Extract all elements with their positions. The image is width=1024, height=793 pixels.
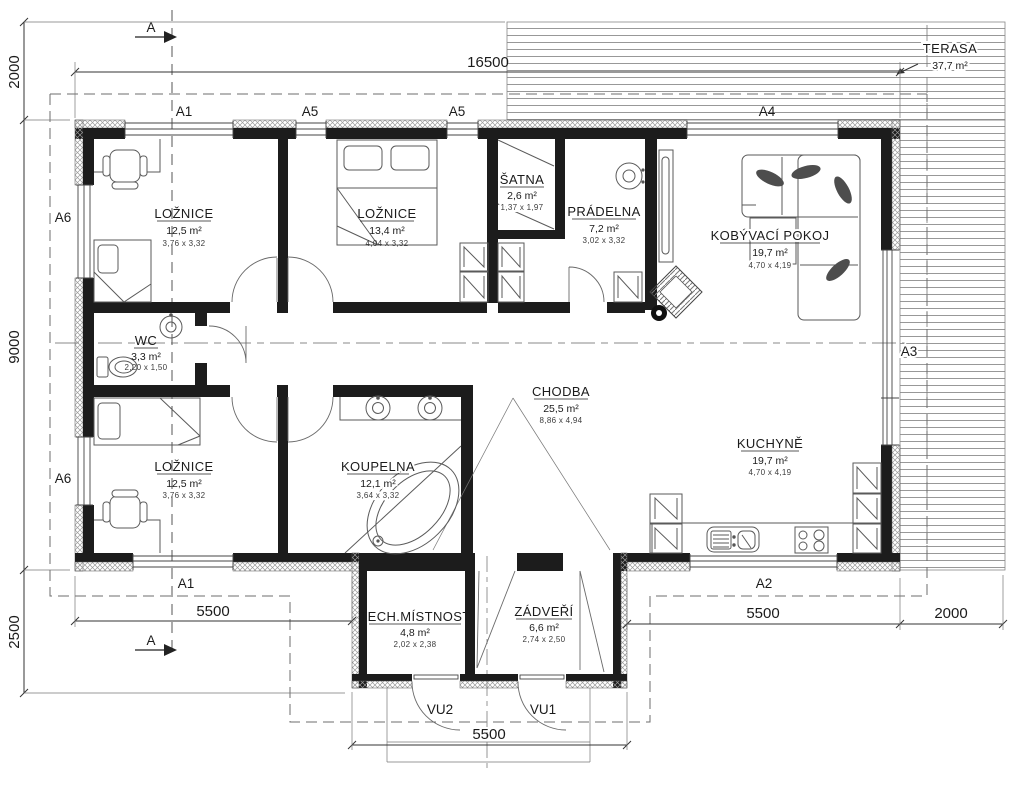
room-name: KOBÝVACÍ POKOJ (711, 228, 830, 243)
marker-a6-top: A6 (55, 210, 72, 225)
terrace: TERASA 37,7 m² (507, 22, 1005, 570)
dimension-bottom-right: 5500 2000 (623, 575, 1007, 630)
section-marker-top: A (135, 20, 177, 43)
room-dims: 8,86 x 4,94 (540, 416, 583, 425)
room-name: LOŽNICE (154, 459, 213, 474)
room-label-kitchen: KUCHYNĚ 19,7 m² 4,70 x 4,19 (737, 436, 803, 477)
floor-plan-drawing: TERASA 37,7 m² (0, 0, 1024, 793)
room-name: PRÁDELNA (567, 204, 640, 219)
doors (209, 257, 604, 730)
marker-vu1: VU1 (530, 702, 556, 717)
room-area: 19,7 m² (752, 455, 788, 467)
terrace-deck-top (507, 22, 1005, 120)
wc-sink-icon (160, 313, 182, 338)
room-area: 12,1 m² (360, 478, 396, 490)
utility-shaft-icon (498, 243, 524, 302)
bed-single-icon (94, 398, 200, 445)
room-name: LOŽNICE (357, 206, 416, 221)
room-area: 3,3 m² (131, 351, 161, 363)
room-label-tech-room: TECH.MÍSTNOST 4,8 m² 2,02 x 2,38 (359, 609, 470, 649)
room-label-laundry: PRÁDELNA 7,2 m² 3,02 x 3,32 (567, 204, 640, 245)
room-dims: 2,74 x 2,50 (523, 635, 566, 644)
door-bedroom1 (232, 257, 277, 302)
window-a6-bottom (76, 437, 93, 505)
bathroom-sinks-icon (340, 396, 461, 420)
marker-a3: A3 (901, 344, 918, 359)
window-a6-top (76, 185, 93, 278)
window-a5-right (447, 121, 478, 138)
room-dims: 2,20 x 1,50 (125, 363, 168, 372)
marker-a5-left: A5 (302, 104, 319, 119)
window-a4 (687, 121, 838, 138)
room-area: 13,4 m² (369, 225, 405, 237)
room-area: 4,8 m² (400, 627, 430, 639)
window-a3 (881, 250, 899, 445)
marker-a6-bottom: A6 (55, 471, 72, 486)
room-area: 7,2 m² (589, 223, 619, 235)
room-area: 12,5 m² (166, 478, 202, 490)
terrace-name: TERASA (923, 41, 977, 56)
marker-a5-right: A5 (449, 104, 466, 119)
room-name: KUCHYNĚ (737, 436, 803, 451)
door-laundry (569, 267, 604, 302)
marker-a4: A4 (759, 104, 776, 119)
room-dims: 1,37 x 1,97 (501, 203, 544, 212)
door-bathroom (288, 397, 333, 442)
room-name: WC (135, 333, 157, 348)
section-arrow-icon (164, 644, 177, 656)
room-dims: 4,70 x 4,19 (749, 261, 792, 270)
window-a1-bottom (133, 554, 233, 570)
dim-text: 9000 (6, 330, 23, 363)
room-area: 25,5 m² (543, 403, 579, 415)
bed-single-icon (94, 240, 151, 302)
room-area: 2,6 m² (507, 190, 537, 202)
room-label-hall: CHODBA 25,5 m² 8,86 x 4,94 (532, 384, 590, 425)
washing-machine-icon (616, 163, 645, 189)
dim-text: 2000 (934, 605, 967, 622)
terrace-area: 37,7 m² (932, 60, 968, 72)
dryer-icon (614, 272, 642, 302)
marker-a1-top: A1 (176, 104, 193, 119)
entry-steps (387, 688, 590, 762)
room-name: ZÁDVEŘÍ (514, 604, 573, 619)
room-name: LOŽNICE (154, 206, 213, 221)
room-name: TECH.MÍSTNOST (359, 609, 470, 624)
room-dims: 4,70 x 4,19 (749, 468, 792, 477)
room-labels: LOŽNICE 12,5 m² 3,76 x 3,32 LOŽNICE 13,4… (125, 172, 830, 649)
room-label-bedroom3: LOŽNICE 12,5 m² 3,76 x 3,32 (154, 459, 213, 500)
marker-vu2: VU2 (427, 702, 453, 717)
room-area: 19,7 m² (752, 247, 788, 259)
dim-text: 2500 (6, 615, 23, 648)
window-a1-top (125, 121, 233, 138)
room-label-bedroom1: LOŽNICE 12,5 m² 3,76 x 3,32 (154, 206, 213, 248)
room-area: 12,5 m² (166, 225, 202, 237)
fireplace-icon (650, 266, 702, 321)
room-label-bathroom: KOUPELNA 12,1 m² 3,64 x 3,32 (341, 459, 415, 500)
room-dims: 3,76 x 3,32 (163, 491, 206, 500)
marker-a2: A2 (756, 576, 773, 591)
dim-text: 16500 (467, 54, 509, 71)
room-label-vestibule: ZÁDVEŘÍ 6,6 m² 2,74 x 2,50 (514, 604, 573, 644)
floor-plan-page: TERASA 37,7 m² (0, 0, 1024, 793)
room-area: 6,6 m² (529, 622, 559, 634)
room-label-wardrobe: ŠATNA 2,6 m² 1,37 x 1,97 (500, 172, 544, 212)
door-hall-opening-2 (580, 571, 604, 672)
room-name: KOUPELNA (341, 459, 415, 474)
dim-text: 5500 (196, 603, 229, 620)
dim-text: 2000 (6, 55, 23, 88)
office-chair-icon (103, 490, 147, 528)
room-label-bedroom2: LOŽNICE 13,4 m² 4,04 x 3,32 (357, 206, 416, 248)
door-bedroom3 (232, 397, 277, 442)
marker-a1-bottom: A1 (178, 576, 195, 591)
room-dims: 4,04 x 3,32 (366, 239, 409, 248)
office-chair-icon (103, 150, 147, 189)
room-dims: 3,64 x 3,32 (357, 491, 400, 500)
section-arrow-icon (164, 31, 177, 43)
section-label: A (146, 633, 155, 648)
room-label-wc: WC 3,3 m² 2,20 x 1,50 (125, 333, 168, 372)
room-dims: 2,02 x 2,38 (394, 640, 437, 649)
room-dims: 3,76 x 3,32 (163, 239, 206, 248)
room-dims: 3,02 x 3,32 (583, 236, 626, 245)
hall-diagonal-lines (433, 398, 610, 550)
door-bedroom2 (288, 257, 333, 302)
window-a5-left (296, 121, 326, 138)
closet-icon (460, 243, 488, 302)
tv-board-icon (659, 150, 673, 262)
room-name: ŠATNA (500, 172, 544, 187)
dim-text: 5500 (746, 605, 779, 622)
section-marker-bottom: A (135, 633, 177, 656)
window-a2 (690, 554, 837, 570)
door-wc (209, 326, 246, 363)
dimension-bottom-left: 5500 (71, 576, 356, 627)
dim-text: 5500 (472, 726, 505, 743)
kitchen-sink-icon (707, 527, 759, 552)
room-name: CHODBA (532, 384, 590, 399)
hob-icon (795, 527, 828, 553)
door-hall-opening-1 (477, 571, 515, 668)
dimension-porch: 5500 (348, 692, 631, 750)
